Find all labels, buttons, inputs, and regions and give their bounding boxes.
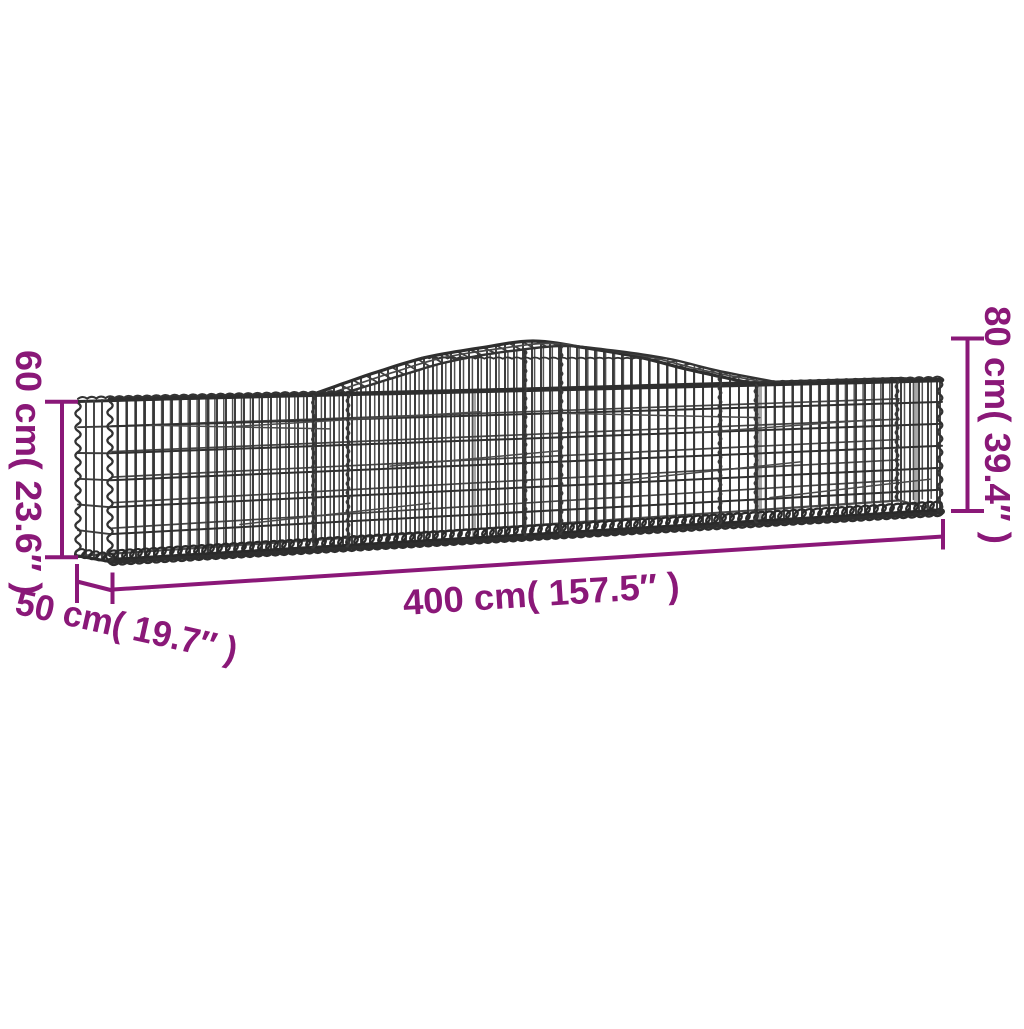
svg-text:60 cm( 23.6″ ): 60 cm( 23.6″ ) [8,350,49,595]
svg-text:80 cm( 39.4″ ): 80 cm( 39.4″ ) [977,306,1018,544]
